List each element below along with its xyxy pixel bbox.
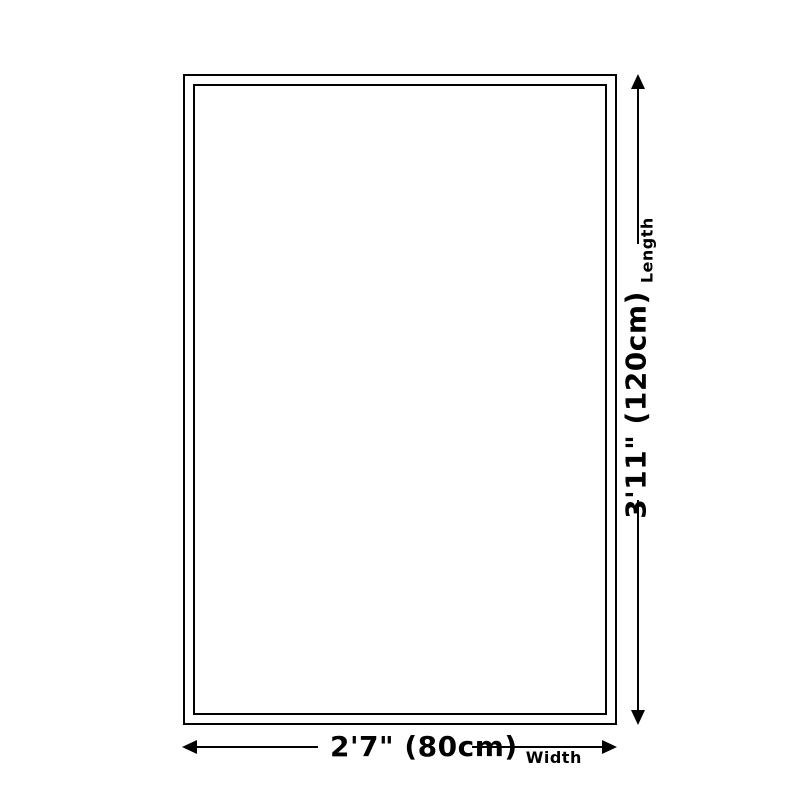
width-line-right <box>472 746 605 748</box>
arrow-right-icon <box>602 740 617 754</box>
arrow-down-icon <box>631 710 645 725</box>
size-diagram: 3'11" (120cm)Length 2'7" (80cm)Width <box>0 0 800 800</box>
width-caption: Width <box>526 748 582 767</box>
length-caption: Length <box>638 217 657 283</box>
length-line-bottom <box>637 500 639 714</box>
width-line-left <box>194 746 318 748</box>
length-value: 3'11" (120cm) <box>620 291 653 519</box>
rug-inner-border <box>193 84 607 715</box>
rug-outer-border <box>183 74 617 725</box>
length-label: 3'11" (120cm)Length <box>622 217 653 519</box>
